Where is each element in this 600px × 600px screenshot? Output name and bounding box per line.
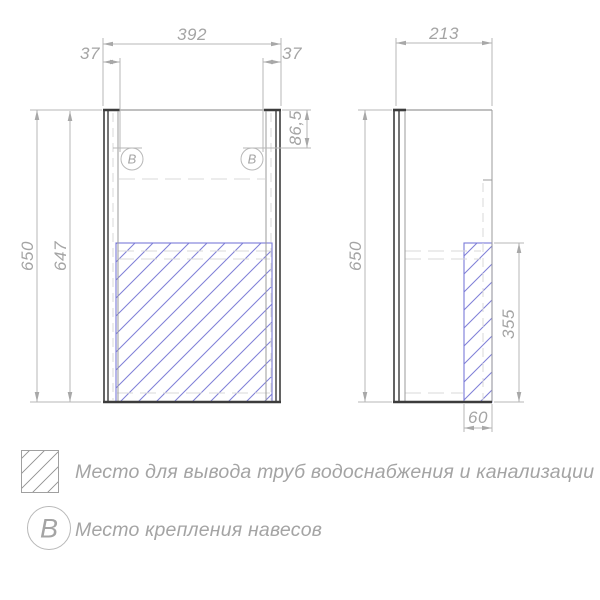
dim-hinge-86-5: 86,5 [286,110,307,148]
pipes-area-side [464,243,492,402]
balloon-label: В [248,152,257,167]
dim-height-650-side: 650 [346,110,365,402]
balloon-label: В [128,152,137,167]
dim-label: 647 [51,241,70,271]
dim-label: 650 [18,241,37,271]
dim-label: 60 [468,408,488,427]
installation-drawing: В В 392 37 37 650 [0,0,600,600]
legend-balloon-label: Место крепления навесов [75,519,322,541]
dim-hatch-depth-60: 60 [464,408,492,428]
legend-item-pipes: Место для вывода труб водоснабжения и ка… [22,451,595,493]
legend-hatch-label: Место для вывода труб водоснабжения и ка… [75,461,594,483]
dim-label: 213 [428,24,459,43]
dim-offset-right-37: 37 [263,44,302,63]
legend-balloon-symbol: В [40,514,58,544]
side-view: 213 650 355 60 [346,24,524,432]
side-extension-lines [358,38,524,432]
dim-width-392: 392 [103,25,281,44]
dim-hatch-height-355: 355 [499,243,519,402]
mount-balloon-right: В [241,148,263,170]
dim-label: 355 [499,309,518,339]
dim-height-650-front: 650 [18,110,37,402]
dim-depth-213: 213 [396,24,492,43]
dim-height-647: 647 [51,111,70,402]
dim-offset-left-37: 37 [80,44,120,63]
legend-item-mounting: В Место крепления навесов [28,507,323,550]
legend: Место для вывода труб водоснабжения и ка… [22,451,595,550]
front-view: В В 392 37 37 650 [18,25,311,402]
dim-label: 650 [346,241,365,271]
drawing-sheet: В В 392 37 37 650 [0,0,600,600]
legend-hatch-swatch [22,451,59,493]
dim-label: 392 [177,25,207,44]
dim-label: 37 [80,44,100,63]
dim-label: 86,5 [286,110,305,145]
pipes-area-front [116,243,272,402]
mount-balloon-left: В [121,148,143,170]
dim-label: 37 [282,44,302,63]
